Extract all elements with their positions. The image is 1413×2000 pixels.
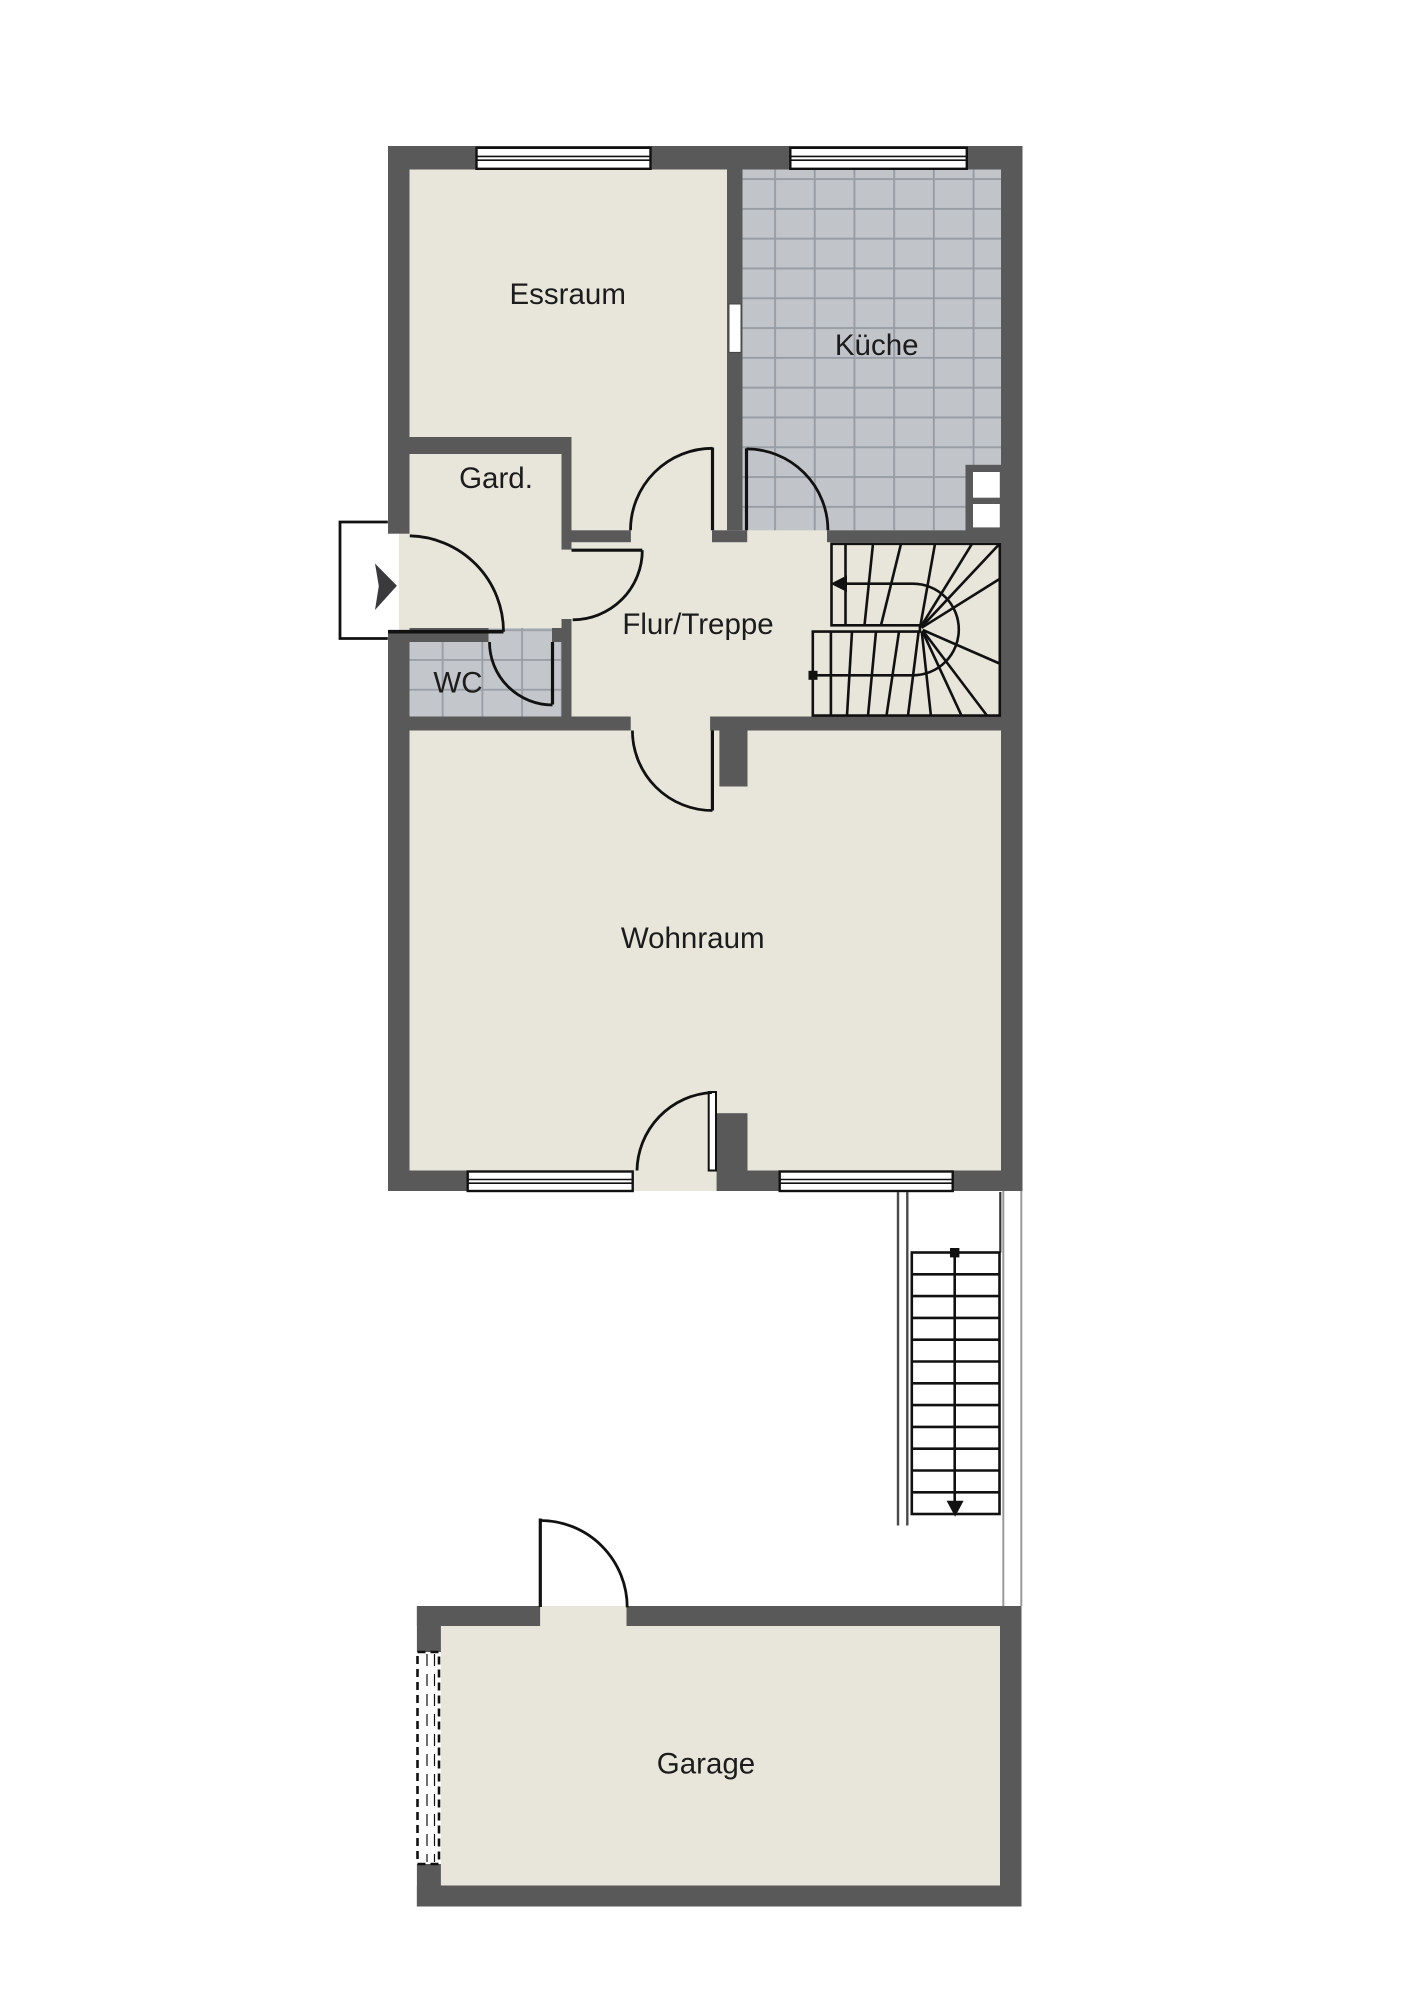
svg-text:Garage: Garage [657, 1748, 755, 1781]
svg-text:Gard.: Gard. [459, 462, 533, 495]
svg-text:WC: WC [433, 667, 482, 700]
svg-text:Flur/Treppe: Flur/Treppe [622, 608, 773, 641]
svg-text:Küche: Küche [835, 329, 919, 362]
svg-text:Essraum: Essraum [510, 278, 626, 311]
svg-text:Wohnraum: Wohnraum [621, 922, 765, 955]
